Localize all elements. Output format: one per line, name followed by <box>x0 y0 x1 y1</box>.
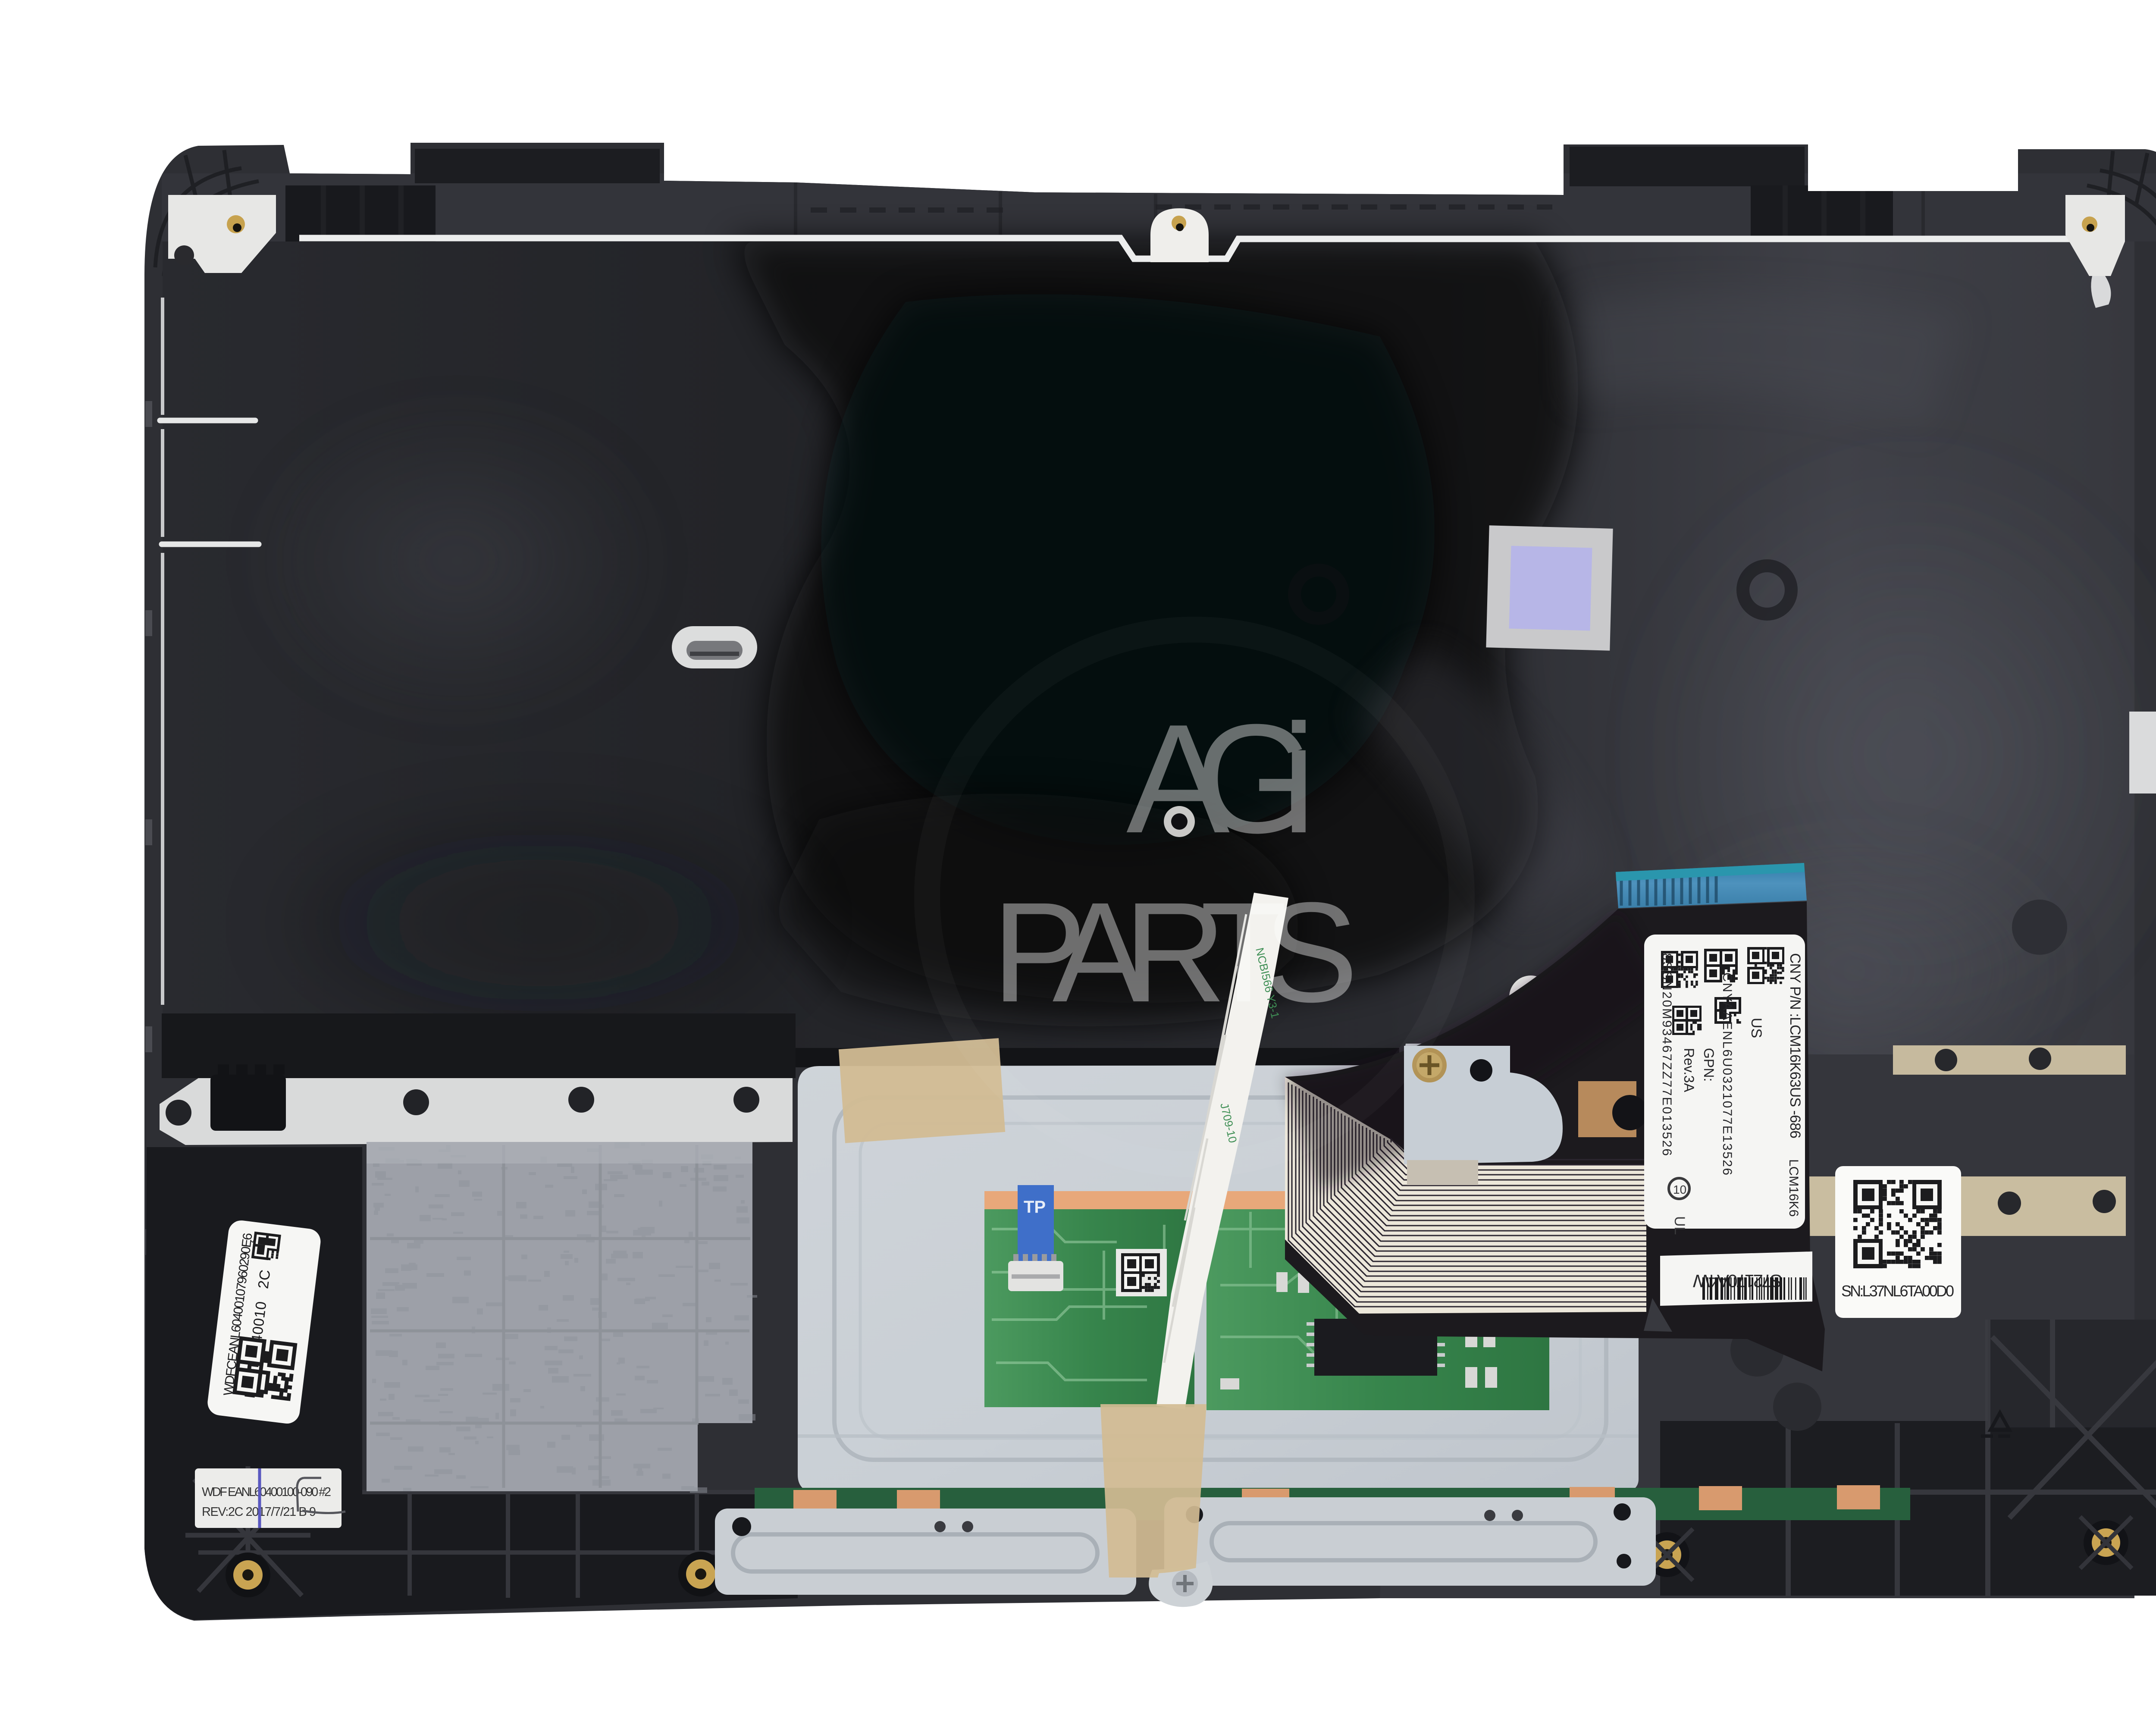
svg-text:8SSN20M93467ZZ77E013526: 8SSN20M93467ZZ77E013526 <box>1660 953 1674 1156</box>
svg-text:UL: UL <box>1671 1216 1688 1235</box>
svg-text:AGi: AGi <box>1126 692 1316 866</box>
svg-text:TP: TP <box>1024 1198 1046 1217</box>
svg-text:GPN:: GPN: <box>1701 1048 1717 1082</box>
svg-text:Rev.3A: Rev.3A <box>1681 1048 1697 1092</box>
svg-text:WDF EANL60400100-090 #2: WDF EANL60400100-090 #2 <box>202 1485 331 1499</box>
svg-text:US: US <box>1748 1018 1764 1038</box>
svg-text:PARTS: PARTS <box>992 872 1358 1032</box>
svg-text:LCM16K6: LCM16K6 <box>1786 1159 1801 1217</box>
svg-text:CNYAAENL6U0321077E13526: CNYAAENL6U0321077E13526 <box>1720 972 1734 1175</box>
svg-text:SN:L37NL6TA00D0: SN:L37NL6TA00D0 <box>1841 1282 1954 1300</box>
svg-text:10: 10 <box>1673 1183 1686 1196</box>
svg-text:CNY P/N :LCM16K63US -686: CNY P/N :LCM16K63US -686 <box>1787 953 1803 1138</box>
